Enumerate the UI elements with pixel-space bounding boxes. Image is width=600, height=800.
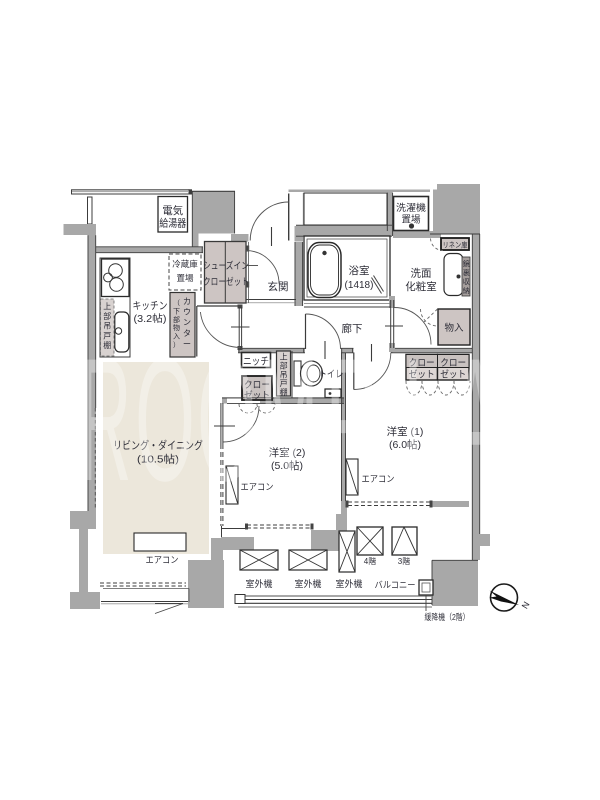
svg-text:洗濯機: 洗濯機 [396, 202, 427, 214]
svg-text:クローゼット: クローゼット [203, 276, 249, 288]
svg-text:電気: 電気 [162, 204, 183, 217]
svg-text:玄関: 玄関 [268, 280, 289, 293]
svg-text:リネン庫: リネン庫 [443, 240, 468, 250]
svg-text:P: P [325, 322, 376, 517]
svg-text:シューズイン: シューズイン [203, 260, 249, 272]
svg-text:O: O [135, 322, 195, 517]
svg-text:室外機: 室外機 [245, 578, 272, 589]
svg-text:4階: 4階 [364, 556, 376, 566]
svg-text:緩降機（2階）: 緩降機（2階） [425, 612, 470, 622]
svg-text:室外機: 室外機 [294, 578, 321, 589]
svg-text:M: M [260, 322, 318, 518]
svg-text:(1418): (1418) [345, 280, 374, 291]
svg-text:置場: 置場 [176, 273, 194, 283]
svg-text:浴室: 浴室 [349, 264, 370, 277]
svg-text:A: A [449, 322, 500, 517]
svg-text:O: O [197, 322, 257, 517]
svg-text:化粧室: 化粧室 [405, 280, 437, 293]
svg-text:バルコニー: バルコニー [375, 580, 416, 590]
svg-text:洗面: 洗面 [411, 268, 432, 280]
svg-text:室外機: 室外機 [335, 578, 362, 589]
svg-text:I: I [402, 322, 423, 517]
svg-text:エアコン: エアコン [146, 555, 179, 565]
svg-text:R: R [78, 324, 131, 518]
svg-text:給湯器: 給湯器 [159, 217, 186, 230]
svg-text:冷蔵庫: 冷蔵庫 [172, 259, 198, 269]
svg-text:キッチン: キッチン [133, 300, 168, 312]
svg-text:3階: 3階 [398, 556, 410, 566]
svg-text:置場: 置場 [401, 214, 421, 226]
